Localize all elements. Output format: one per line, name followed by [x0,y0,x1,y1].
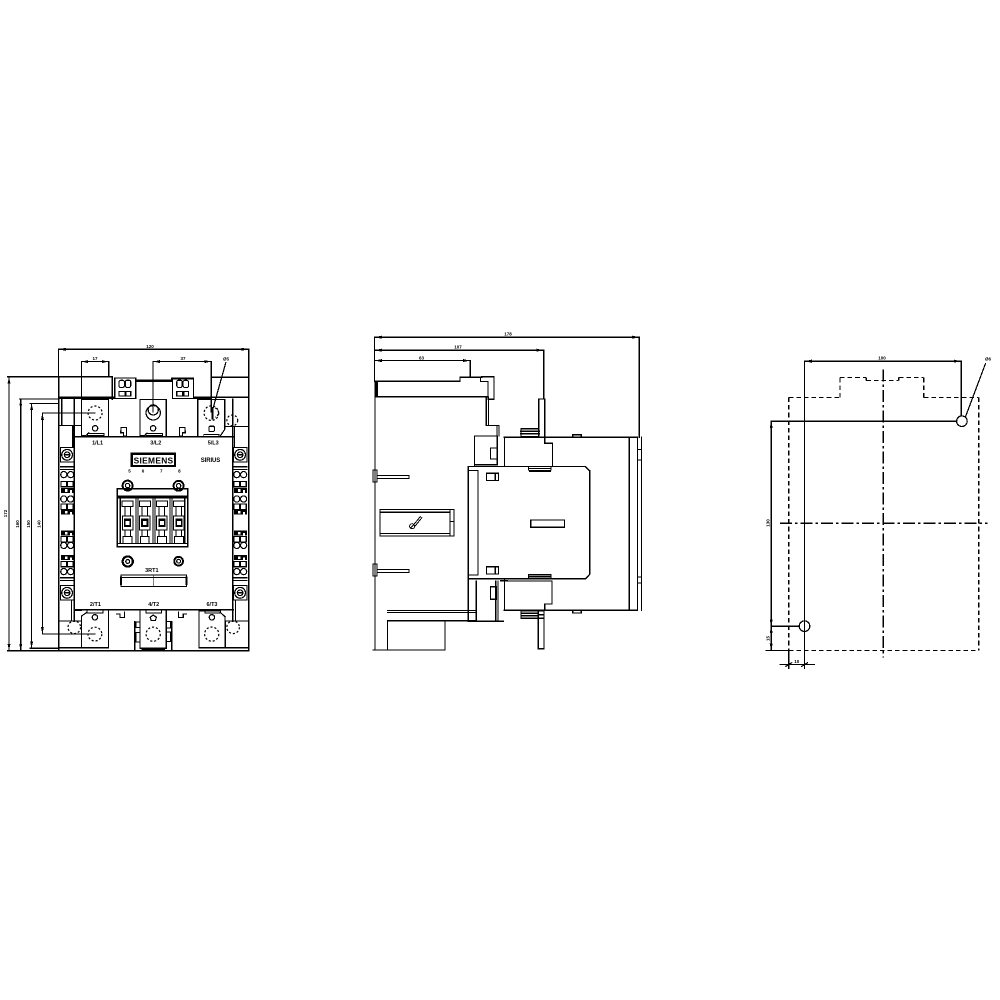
svg-text:140: 140 [37,520,42,528]
svg-text:130: 130 [765,519,770,527]
svg-text:172: 172 [3,509,8,517]
svg-text:3/L2: 3/L2 [150,440,161,446]
svg-text:4/T2: 4/T2 [148,602,159,608]
svg-text:Ø6: Ø6 [985,357,992,362]
svg-text:63: 63 [419,355,425,360]
svg-text:17: 17 [92,356,98,361]
svg-text:3RT1: 3RT1 [145,568,158,574]
svg-text:150: 150 [26,520,31,528]
svg-text:2/T1: 2/T1 [90,602,101,608]
svg-text:1/L1: 1/L1 [92,440,103,446]
svg-text:178: 178 [504,332,512,337]
svg-text:SIRIUS: SIRIUS [201,458,221,464]
svg-text:Ø5: Ø5 [223,356,230,361]
svg-text:160: 160 [15,520,20,528]
svg-text:15: 15 [765,636,770,642]
svg-text:10: 10 [794,659,800,664]
svg-text:5/L3: 5/L3 [208,440,219,446]
svg-text:6/T3: 6/T3 [206,602,217,608]
svg-text:SIEMENS: SIEMENS [134,456,174,466]
svg-text:120: 120 [146,344,154,349]
svg-text:100: 100 [878,356,886,361]
svg-text:107: 107 [454,345,462,350]
svg-text:37: 37 [180,356,186,361]
